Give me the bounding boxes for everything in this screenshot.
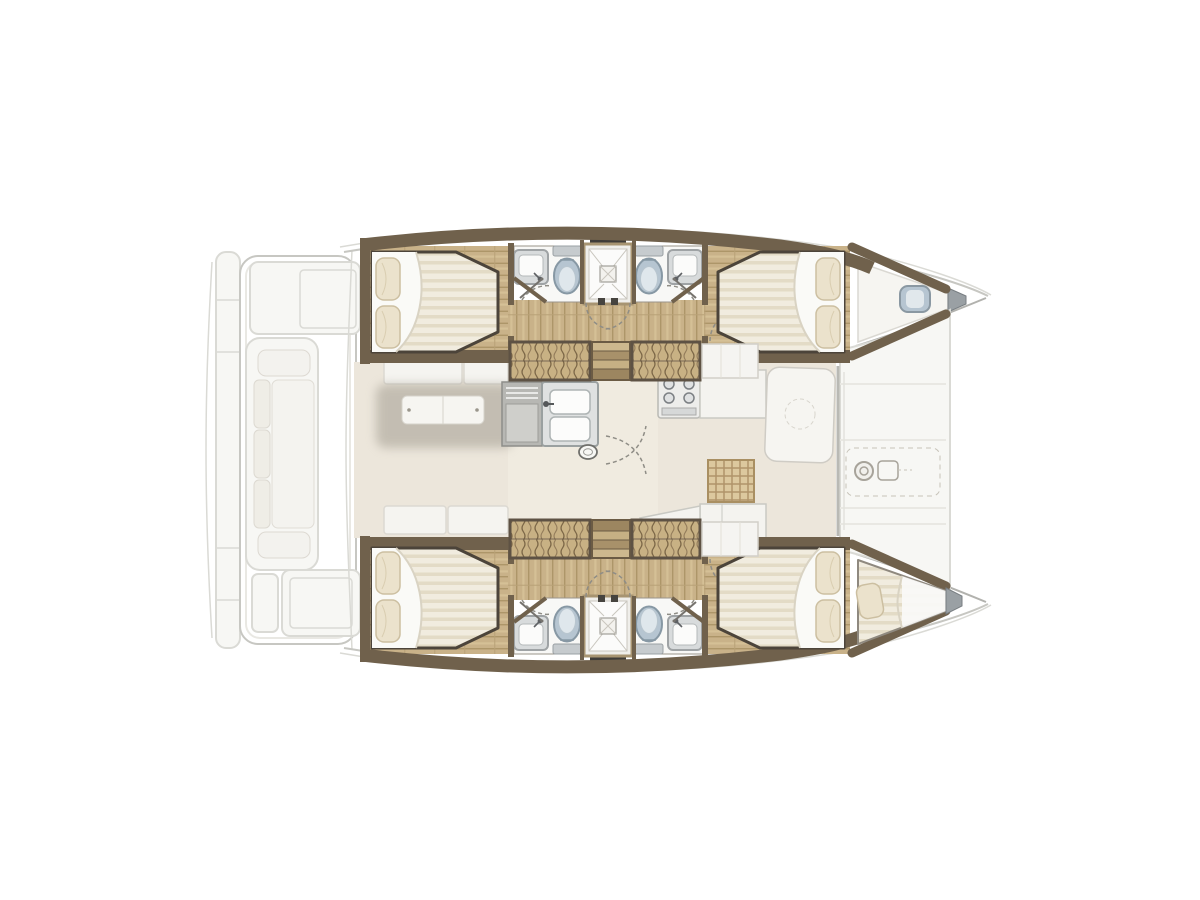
sofa-armrest-top: [258, 350, 310, 376]
aft-locker: [252, 574, 278, 632]
teak-grating: [708, 460, 754, 502]
table-hinge: [475, 408, 479, 412]
page: [0, 0, 1200, 900]
shower-wall: [632, 240, 636, 304]
door-stop: [611, 298, 618, 305]
shower-wall: [580, 240, 584, 304]
fore-double-bed: [718, 252, 844, 352]
toilet-cistern: [553, 246, 581, 256]
sofa-back-cushion: [254, 380, 270, 428]
cabin-bulkhead: [702, 243, 708, 305]
companionway-steps: [592, 342, 630, 380]
cockpit-sofa: [246, 338, 318, 570]
step-tread: [592, 351, 630, 360]
galley-island: [764, 367, 835, 463]
toilet-seat: [559, 267, 576, 292]
aft-sunpad: [282, 570, 360, 636]
storage-band: [510, 342, 758, 380]
salon-cabinet: [702, 344, 758, 378]
door-stop: [598, 298, 605, 305]
cabin-bulkhead: [508, 243, 514, 305]
toilet-cistern: [635, 246, 663, 256]
salon-bench: [464, 360, 508, 384]
pillow: [816, 258, 840, 300]
door-handle: [673, 278, 676, 281]
table-hinge: [407, 408, 411, 412]
salon-bench: [384, 506, 446, 534]
salon-table: [402, 396, 484, 424]
transom-platform: [206, 252, 240, 648]
shared-shower: [584, 236, 632, 304]
aft-cockpit: [240, 244, 370, 656]
sink-basin: [550, 390, 590, 414]
sink-basin: [550, 417, 590, 441]
windlass-drum: [855, 462, 873, 480]
cockpit-table: [250, 262, 360, 334]
burner-icon: [684, 393, 694, 403]
salon-galley: [354, 360, 844, 546]
cabinet-door: [506, 404, 538, 442]
bow-hatch-glass: [906, 290, 924, 308]
sofa-armrest-bottom: [258, 532, 310, 558]
toilet-seat: [641, 267, 658, 292]
sofa-seat: [272, 380, 314, 528]
salon-bench: [448, 506, 508, 534]
step-tread: [592, 369, 630, 380]
sofa-back-cushion: [254, 480, 270, 528]
transom-outer-curve: [206, 262, 212, 638]
pillow: [376, 258, 400, 300]
salon-bench: [384, 360, 462, 384]
washbasin: [673, 255, 697, 276]
washbasin: [519, 255, 543, 276]
door-handle: [541, 278, 544, 281]
transom-strip: [216, 252, 240, 648]
pillow: [855, 582, 885, 620]
step-tread: [592, 360, 630, 369]
floorplan-canvas: [0, 0, 1200, 900]
sink-bowl: [579, 445, 597, 459]
sofa-back-cushion: [254, 430, 270, 478]
pillow: [376, 306, 400, 348]
aft-bulkhead: [360, 238, 370, 364]
pillow: [816, 306, 840, 348]
burner-icon: [664, 393, 674, 403]
aft-double-bed: [372, 252, 498, 352]
stove-controls: [662, 408, 696, 415]
step-tread: [592, 342, 630, 351]
